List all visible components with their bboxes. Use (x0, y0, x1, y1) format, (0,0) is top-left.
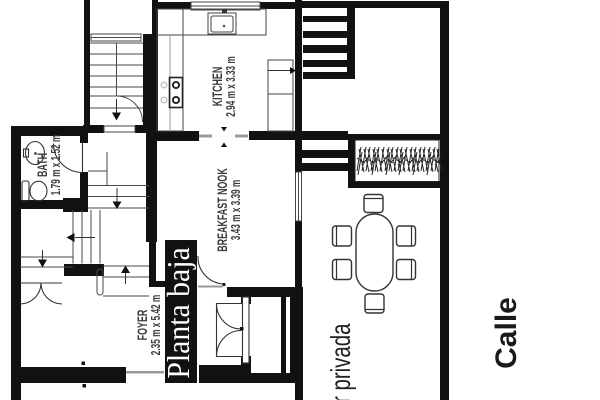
svg-text:r privada: r privada (326, 323, 357, 400)
svg-text:2.94 m x 3.33 m: 2.94 m x 3.33 m (224, 56, 238, 116)
svg-text:1.79 m x 1.52 m: 1.79 m x 1.52 m (49, 135, 63, 195)
svg-text:Planta baja: Planta baja (160, 247, 196, 379)
svg-text:Calle: Calle (490, 297, 523, 369)
svg-text:3.43 m x 3.39 m: 3.43 m x 3.39 m (229, 180, 243, 240)
